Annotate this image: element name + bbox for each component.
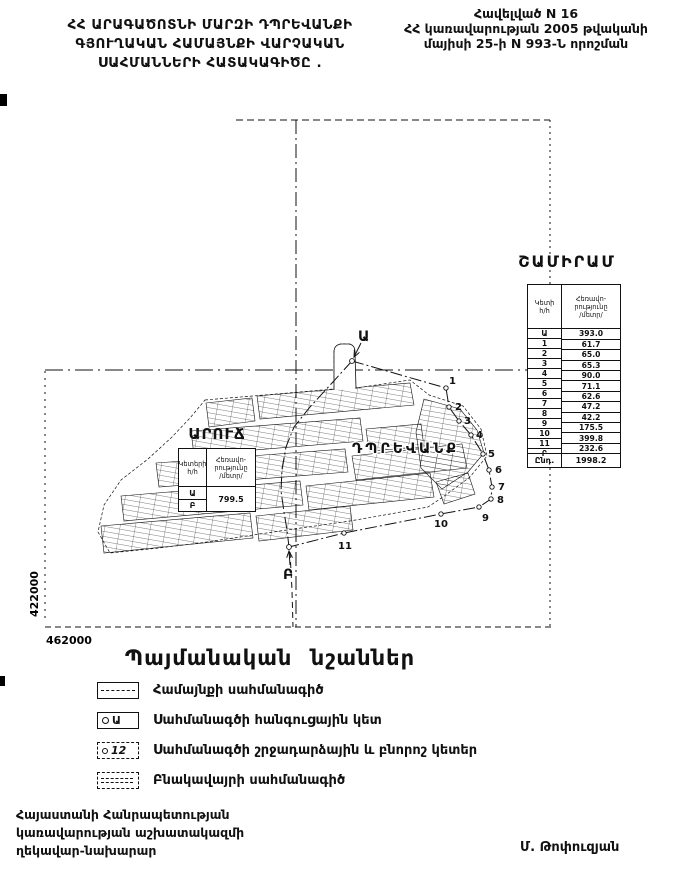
- table-cell: 65.3: [562, 361, 620, 371]
- table-row: 1: [528, 339, 561, 349]
- settlement-name-label: ԴՊՐԵՎԱՆՔ: [352, 441, 459, 457]
- point-label: 5: [488, 449, 495, 460]
- appendix-note-line: ՀՀ կառավարության 2005 թվականի: [385, 21, 667, 36]
- shamiram-col1-header: Կետի հ/հ: [528, 285, 562, 328]
- table-row: 7: [528, 399, 561, 409]
- settlement-protrusion: [334, 344, 356, 390]
- aruch-value-column: 799.5: [207, 487, 255, 511]
- scan-artifact: [0, 676, 5, 686]
- legend-item-label: Բնակավայրի սահմանագիծ: [153, 773, 345, 788]
- total-value: 1998.2: [562, 454, 620, 467]
- shamiram-table-title: ՇԱՄԻՐԱՄ: [514, 252, 620, 271]
- appendix-note-line: մայիսի 25-ի N 993-Ն որոշման: [385, 36, 667, 51]
- legend-item-label: Սահմանագծի հանգուցային կետ: [153, 713, 382, 728]
- document-title-line: ԳՅՈՒՂԱԿԱՆ ՀԱՄԱՅՆՔԻ ՎԱՐՉԱԿԱՆ: [50, 35, 370, 54]
- table-row: 11: [528, 439, 561, 449]
- point-label: 6: [495, 465, 502, 476]
- table-cell: 232.6: [562, 444, 620, 453]
- issuing-authority-line: ղեկավար-նախարար: [16, 842, 244, 860]
- table-cell: 175.5: [562, 423, 620, 433]
- aruch-col1-header: Կետերի հ/հ: [179, 449, 207, 486]
- document-title: ՀՀ ԱՐԱԳԱԾՈՏՆԻ ՄԱՐԶԻ ԴՊՐԵՎԱՆՔԻ ԳՅՈՒՂԱԿԱՆ …: [50, 16, 370, 73]
- turning-point-icon: 12: [97, 742, 139, 759]
- legend-item-community-boundary: Համայնքի սահմանագիծ: [97, 682, 324, 699]
- point-label: 4: [476, 430, 483, 441]
- legend-title: Պայմանական նշաններ: [120, 646, 420, 670]
- issuing-authority-line: կառավարության աշխատակազմի: [16, 824, 244, 842]
- table-row: 5: [528, 379, 561, 389]
- table-cell: 90.0: [562, 371, 620, 381]
- junction-point-icon: Ա: [97, 712, 139, 729]
- point-label: 1: [449, 376, 456, 387]
- legend-item-settlement-boundary: Բնակավայրի սահմանագիծ: [97, 772, 345, 789]
- table-cell: 71.1: [562, 381, 620, 391]
- community-boundary-icon: [97, 682, 139, 699]
- table-row: 6: [528, 389, 561, 399]
- table-row: 10: [528, 429, 561, 439]
- shamiram-distance-table: Կետի հ/հ Հեռավո- րությունը /մետր/ Ա 1 2 …: [527, 284, 621, 468]
- issuing-authority-line: Հայաստանի Հանրապետության: [16, 806, 244, 824]
- document-title-line: ՀՀ ԱՐԱԳԱԾՈՏՆԻ ՄԱՐԶԻ ԴՊՐԵՎԱՆՔԻ: [50, 16, 370, 35]
- table-cell: 393.0: [562, 329, 620, 339]
- table-row: 3: [528, 359, 561, 369]
- table-row: Ա: [528, 329, 561, 339]
- legend-item-turning-points: 12 Սահմանագծի շրջադարձային և բնորոշ կետե…: [97, 742, 477, 759]
- grid-coordinate-label-left: 422000: [28, 571, 41, 617]
- parcel-blocks: [101, 383, 484, 553]
- table-cell: 61.7: [562, 340, 620, 350]
- legend-item-label: Սահմանագծի շրջադարձային և բնորոշ կետեր: [153, 743, 477, 758]
- appendix-note-line: Հավելված N 16: [385, 6, 667, 21]
- table-row: 4: [528, 369, 561, 379]
- point-label: 9: [482, 513, 489, 524]
- aruch-table-title: ԱՐՈՒՃ: [178, 425, 256, 443]
- table-cell: 62.6: [562, 392, 620, 402]
- table-cell: 42.2: [562, 413, 620, 423]
- shamiram-point-column: Ա 1 2 3 4 5 6 7 8 9 10 11 Բ: [528, 329, 562, 453]
- table-cell: 799.5: [207, 487, 255, 511]
- settlement-boundary-icon: [97, 772, 139, 789]
- table-row: Ա: [179, 487, 206, 499]
- aruch-point-column: Ա Բ: [179, 487, 207, 511]
- point-label-a: Ա: [358, 329, 369, 345]
- point-label: 3: [464, 416, 471, 427]
- document-title-line: ՍԱՀՄԱՆՆԵՐԻ ՀԱՏԱԿԱԳԻԾԸ .: [50, 54, 370, 73]
- shamiram-col2-header: Հեռավո- րությունը /մետր/: [562, 285, 620, 328]
- grid-coordinate-label-bottom: 462000: [46, 634, 92, 647]
- aruch-distance-table: Կետերի հ/հ Հեռավո- րությունը /մետր/ Ա Բ …: [178, 448, 256, 512]
- shamiram-value-column: 393.0 61.7 65.0 65.3 90.0 71.1 62.6 47.2…: [562, 329, 620, 453]
- table-row: 8: [528, 409, 561, 419]
- point-label: 11: [338, 541, 352, 552]
- table-row: 2: [528, 349, 561, 359]
- aruch-col2-header: Հեռավո- րությունը /մետր/: [207, 449, 255, 486]
- appendix-note: Հավելված N 16 ՀՀ կառավարության 2005 թվակ…: [385, 6, 667, 51]
- point-label: 8: [497, 495, 504, 506]
- legend-item-junction-point: Ա Սահմանագծի հանգուցային կետ: [97, 712, 382, 729]
- point-label-b: Բ: [283, 567, 293, 583]
- table-cell: 47.2: [562, 402, 620, 412]
- boundary-continuation: [290, 552, 293, 627]
- shamiram-total-row: Ընդ. 1998.2: [528, 453, 620, 467]
- table-row: Բ: [179, 500, 206, 511]
- signature-name: Մ. Թոփուզյան: [520, 840, 619, 855]
- scan-artifact: [0, 94, 7, 106]
- point-label: 10: [434, 519, 448, 530]
- table-cell: 399.8: [562, 433, 620, 443]
- point-label: 7: [498, 482, 505, 493]
- table-row: 9: [528, 419, 561, 429]
- legend-item-label: Համայնքի սահմանագիծ: [153, 683, 324, 698]
- issuing-authority: Հայաստանի Հանրապետության կառավարության ա…: [16, 806, 244, 860]
- point-label: 2: [455, 402, 462, 413]
- table-cell: 65.0: [562, 350, 620, 360]
- total-label: Ընդ.: [528, 454, 562, 467]
